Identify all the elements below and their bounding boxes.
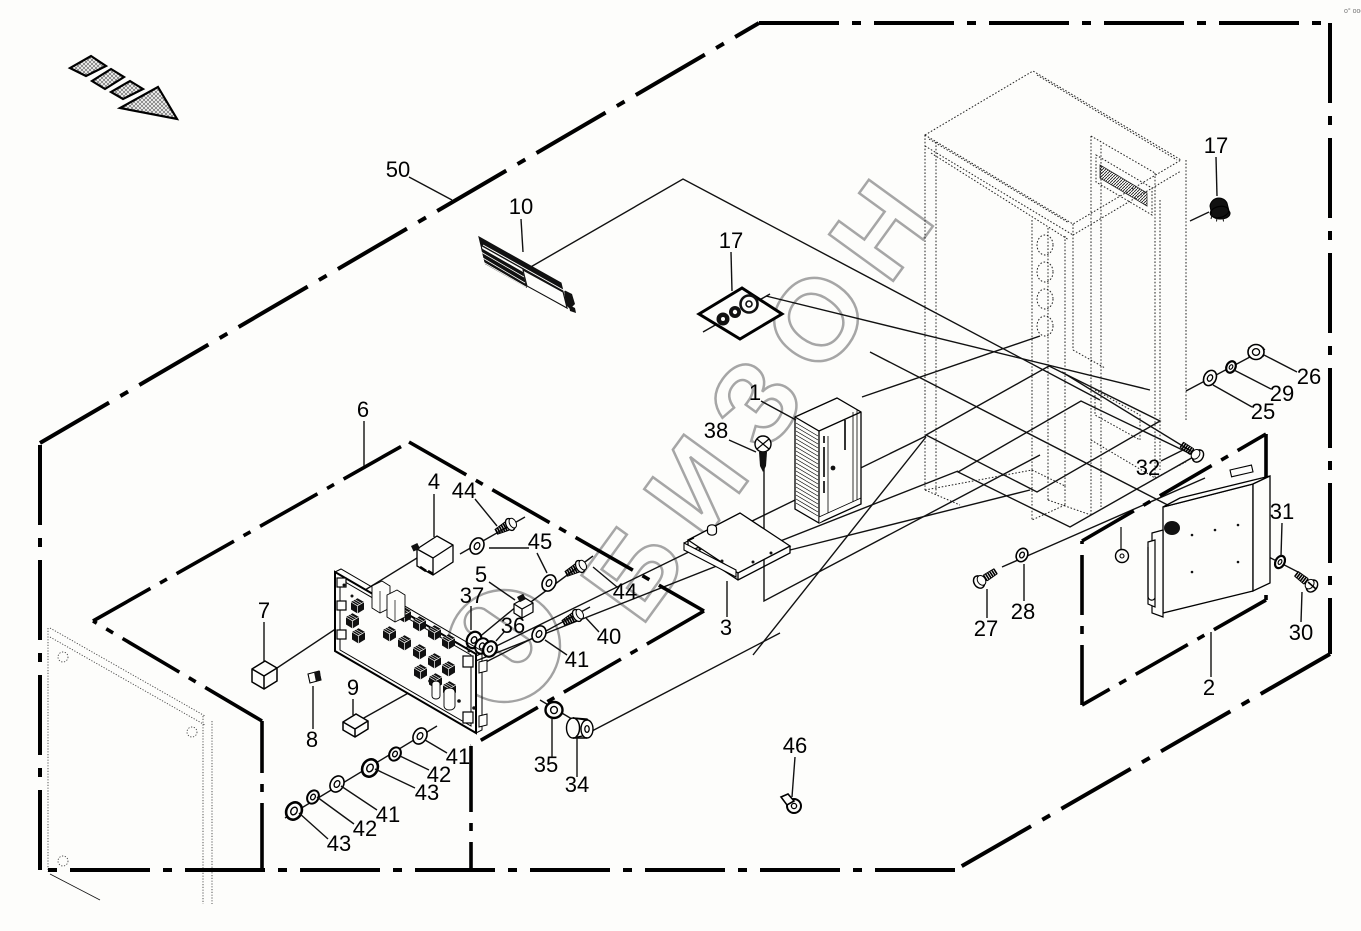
svg-text:10: 10	[509, 194, 533, 219]
svg-text:35: 35	[534, 752, 558, 777]
svg-text:27: 27	[974, 616, 998, 641]
svg-text:31: 31	[1270, 499, 1294, 524]
svg-text:17: 17	[719, 228, 743, 253]
svg-text:38: 38	[704, 418, 728, 443]
svg-text:3: 3	[720, 615, 732, 640]
svg-text:45: 45	[528, 529, 552, 554]
svg-text:36: 36	[501, 613, 525, 638]
svg-text:7: 7	[258, 598, 270, 623]
svg-text:50: 50	[386, 157, 410, 182]
svg-text:4: 4	[428, 469, 440, 494]
svg-text:2: 2	[1203, 675, 1215, 700]
svg-text:9: 9	[347, 675, 359, 700]
svg-text:8: 8	[306, 727, 318, 752]
svg-text:6: 6	[357, 397, 369, 422]
svg-text:32: 32	[1136, 455, 1160, 480]
svg-text:26: 26	[1297, 364, 1321, 389]
svg-text:44: 44	[452, 478, 476, 503]
svg-text:46: 46	[783, 733, 807, 758]
svg-text:17: 17	[1204, 133, 1228, 158]
svg-text:41: 41	[376, 802, 400, 827]
svg-text:1: 1	[749, 380, 761, 405]
svg-text:28: 28	[1011, 599, 1035, 624]
svg-text:41: 41	[565, 647, 589, 672]
svg-text:40: 40	[597, 624, 621, 649]
svg-text:o° ooo: o° ooo	[1344, 7, 1361, 15]
svg-text:25: 25	[1251, 399, 1275, 424]
svg-text:43: 43	[327, 831, 351, 856]
svg-text:43: 43	[415, 780, 439, 805]
svg-text:44: 44	[613, 579, 637, 604]
svg-text:42: 42	[353, 816, 377, 841]
svg-text:30: 30	[1289, 620, 1313, 645]
svg-text:37: 37	[460, 583, 484, 608]
